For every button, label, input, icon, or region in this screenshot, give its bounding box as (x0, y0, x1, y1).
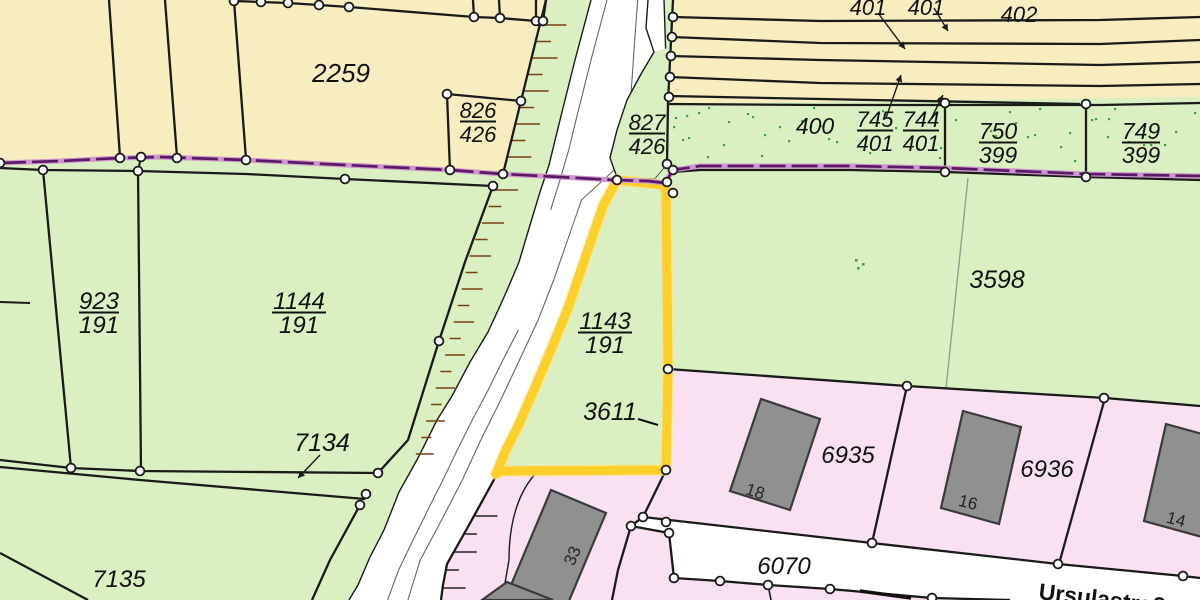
svg-text:744: 744 (903, 107, 940, 132)
svg-text:6936: 6936 (1020, 456, 1074, 483)
svg-text:426: 426 (629, 134, 666, 159)
svg-text:1144: 1144 (273, 288, 325, 315)
svg-text:399: 399 (1122, 142, 1161, 168)
svg-text:826: 826 (460, 98, 497, 123)
svg-text:923: 923 (79, 288, 120, 315)
svg-text:1143: 1143 (579, 308, 631, 335)
svg-text:401: 401 (903, 131, 940, 156)
svg-text:6070: 6070 (757, 553, 811, 580)
svg-text:191: 191 (585, 332, 625, 359)
svg-text:191: 191 (279, 312, 319, 339)
svg-text:745: 745 (857, 107, 894, 132)
svg-text:401: 401 (908, 0, 945, 20)
svg-text:3598: 3598 (969, 266, 1025, 294)
svg-text:749: 749 (1122, 118, 1161, 144)
svg-text:3611: 3611 (583, 398, 637, 426)
svg-text:7135: 7135 (92, 566, 146, 593)
svg-text:402: 402 (1001, 2, 1038, 27)
svg-text:191: 191 (79, 312, 119, 339)
svg-text:6935: 6935 (821, 442, 875, 469)
svg-text:401: 401 (850, 0, 887, 20)
svg-text:7134: 7134 (294, 429, 350, 457)
svg-text:401: 401 (857, 131, 894, 156)
svg-text:2259: 2259 (311, 58, 370, 88)
svg-text:750: 750 (979, 118, 1018, 144)
svg-text:399: 399 (979, 142, 1018, 168)
svg-text:827: 827 (629, 110, 666, 135)
svg-text:426: 426 (460, 122, 497, 147)
svg-text:400: 400 (796, 113, 835, 139)
